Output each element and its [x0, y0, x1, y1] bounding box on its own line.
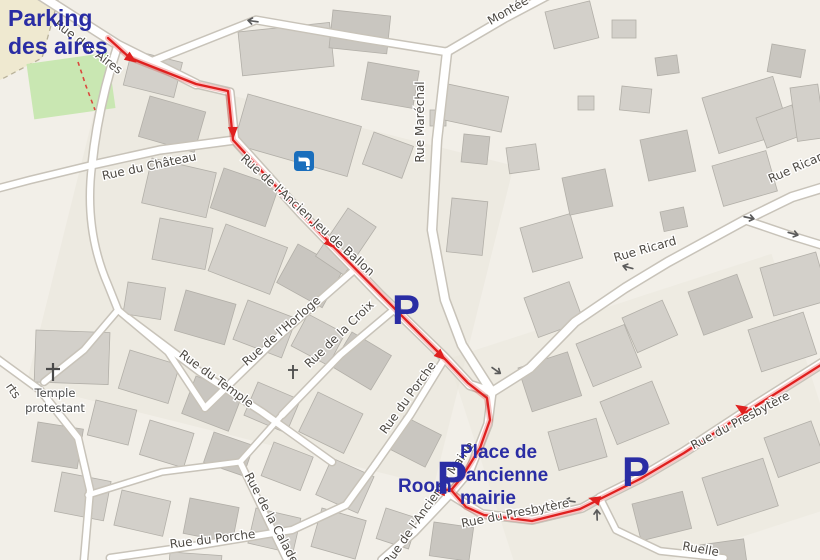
temple-label-line1: Temple	[34, 386, 76, 400]
place-label-line1: Place de	[460, 442, 537, 463]
parking-marker: P	[392, 286, 420, 333]
place-label-line2: l'ancienne	[456, 465, 548, 486]
street-label-montee: Montée	[485, 0, 531, 28]
parking-label-line2: des aires	[8, 33, 108, 59]
street-label-rue-ricard-2: Rue Ricard	[766, 147, 820, 186]
street-label-fragment-rts: rts	[3, 380, 24, 401]
map-svg: Rue des Aires Rue du Château Rue de l'An…	[0, 0, 820, 560]
place-label-line3: mairie	[460, 488, 516, 509]
map-canvas: Rue des Aires Rue du Château Rue de l'An…	[0, 0, 820, 560]
parking-marker: P	[622, 448, 650, 495]
temple-label-line2: protestant	[25, 401, 85, 415]
parking-label-line1: Parking	[8, 5, 92, 31]
room-label: Room	[398, 476, 452, 497]
street-label-rue-marechal: Rue Maréchal	[413, 81, 427, 162]
drinking-water-icon	[294, 151, 314, 171]
oneway-arrow-icon	[622, 263, 633, 271]
